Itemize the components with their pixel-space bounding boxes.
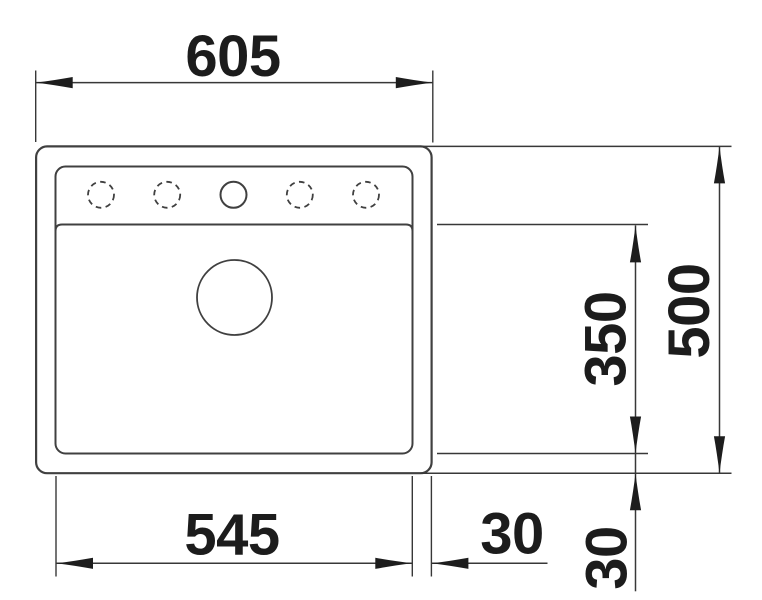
svg-text:350: 350 — [573, 291, 638, 386]
svg-text:30: 30 — [575, 526, 640, 590]
svg-text:605: 605 — [185, 24, 280, 89]
svg-text:30: 30 — [480, 501, 544, 566]
svg-text:500: 500 — [657, 263, 722, 358]
svg-text:545: 545 — [184, 503, 279, 568]
